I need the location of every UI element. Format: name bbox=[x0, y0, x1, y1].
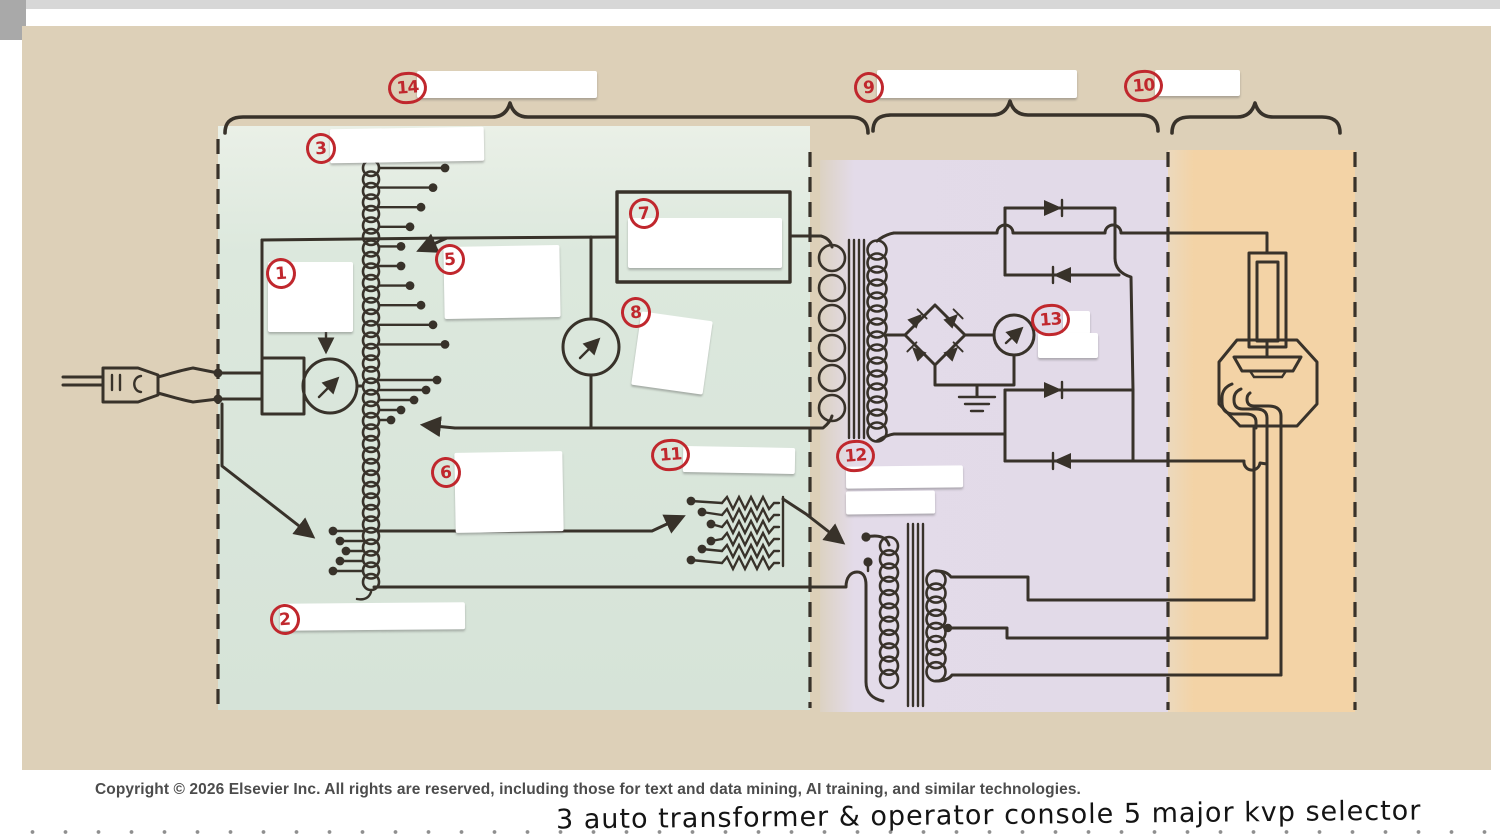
answer-blank-6[interactable] bbox=[454, 451, 563, 533]
answer-blank-14[interactable] bbox=[417, 71, 597, 98]
anode-high-voltage-wire bbox=[894, 225, 1267, 253]
answer-blank-12b[interactable] bbox=[846, 491, 935, 515]
ground-icon bbox=[959, 385, 995, 411]
rectifier-diode-loop-top bbox=[1005, 200, 1133, 390]
filament-feed-wire bbox=[374, 572, 883, 701]
answer-blank-3[interactable] bbox=[330, 127, 485, 164]
brace-tube-section bbox=[1172, 103, 1340, 133]
input-taps bbox=[222, 404, 363, 575]
power-plug-icon bbox=[63, 368, 223, 404]
answer-blank-13b[interactable] bbox=[1038, 333, 1098, 358]
answer-blank-10[interactable] bbox=[1155, 70, 1240, 96]
filament-rheostat bbox=[379, 497, 842, 569]
answer-blank-2[interactable] bbox=[280, 602, 465, 631]
screenshot-page: 14 3 1 5 7 8 6 2 11 9 10 12 13 Copyright… bbox=[0, 0, 1500, 837]
primary-feed-wire bbox=[424, 416, 832, 428]
x-ray-tube bbox=[1219, 253, 1317, 675]
cathode-filament bbox=[1222, 384, 1281, 428]
anode-target bbox=[1234, 357, 1301, 371]
rectifier-bridge-icon bbox=[905, 305, 965, 365]
brace-console-section bbox=[225, 103, 868, 133]
rectifier-diode-loop-bottom bbox=[1005, 382, 1267, 470]
filament-transformer bbox=[861, 524, 1281, 706]
circuit-diagram bbox=[0, 0, 1500, 837]
kvp-meter bbox=[563, 237, 619, 428]
brace-high-voltage-section bbox=[873, 101, 1158, 131]
answer-blank-11[interactable] bbox=[683, 446, 795, 474]
answer-blank-9[interactable] bbox=[877, 70, 1077, 98]
copyright-text: Copyright © 2026 Elsevier Inc. All right… bbox=[95, 781, 1081, 799]
minor-kvp-taps bbox=[379, 376, 441, 425]
